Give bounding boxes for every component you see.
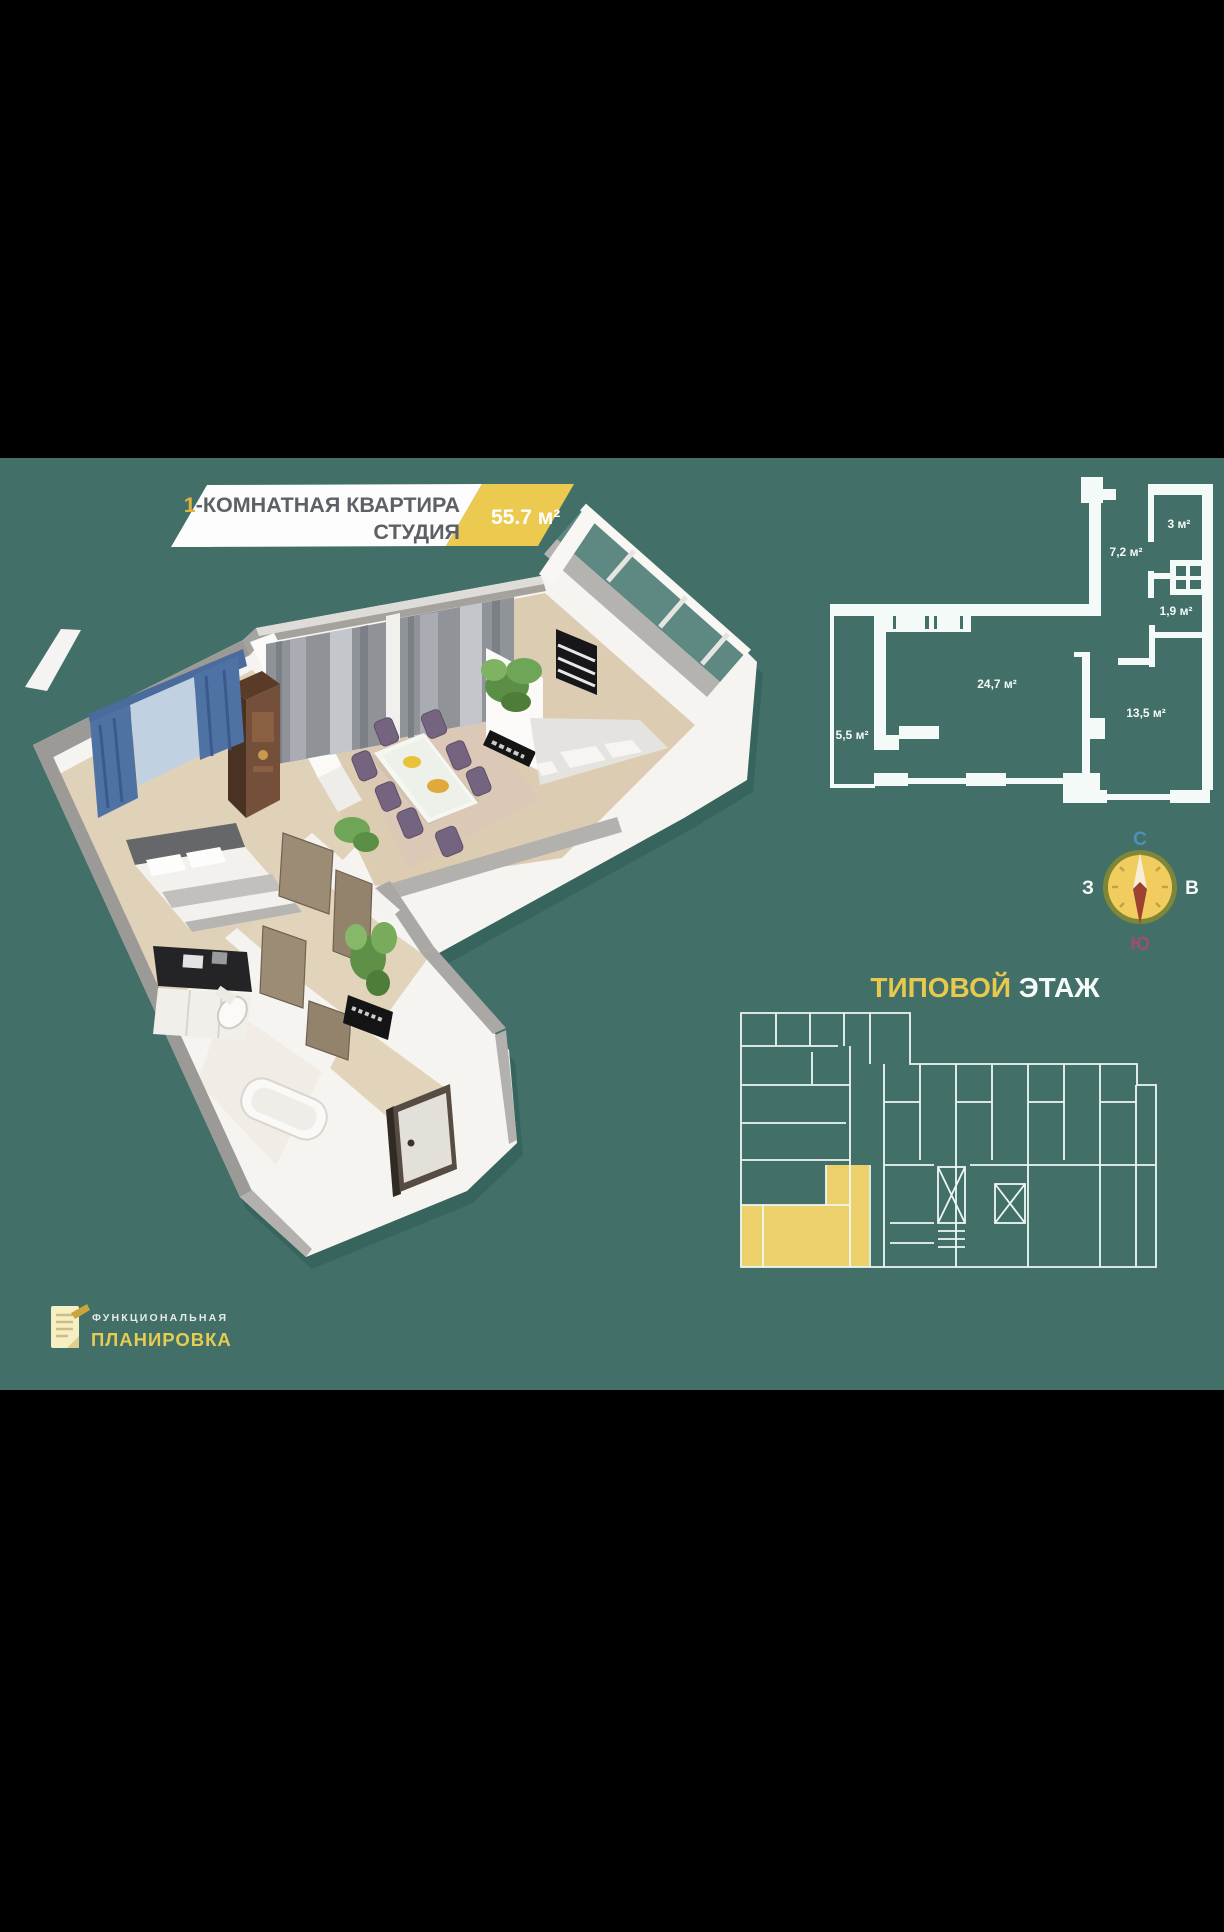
svg-text:1-КОМНАТНАЯ КВАРТИРА: 1-КОМНАТНАЯ КВАРТИРА bbox=[184, 493, 460, 517]
svg-text:ПЛАНИРОВКА: ПЛАНИРОВКА bbox=[91, 1329, 232, 1350]
svg-text:С: С bbox=[1133, 829, 1147, 850]
svg-text:5,5 м²: 5,5 м² bbox=[836, 728, 869, 742]
svg-text:В: В bbox=[1185, 878, 1199, 899]
svg-text:1,9 м²: 1,9 м² bbox=[1160, 604, 1193, 618]
svg-text:55.7 м²: 55.7 м² bbox=[491, 506, 560, 529]
svg-text:3 м²: 3 м² bbox=[1168, 517, 1191, 531]
svg-text:ФУНКЦИОНАЛЬНАЯ: ФУНКЦИОНАЛЬНАЯ bbox=[92, 1312, 228, 1324]
svg-text:СТУДИЯ: СТУДИЯ bbox=[373, 520, 460, 544]
svg-text:24,7 м²: 24,7 м² bbox=[977, 677, 1017, 691]
svg-text:ТИПОВОЙ ЭТАЖ: ТИПОВОЙ ЭТАЖ bbox=[870, 971, 1100, 1003]
svg-text:7,2 м²: 7,2 м² bbox=[1110, 545, 1143, 559]
svg-text:Ю: Ю bbox=[1130, 934, 1150, 955]
svg-text:З: З bbox=[1082, 878, 1094, 899]
svg-text:13,5 м²: 13,5 м² bbox=[1126, 706, 1166, 720]
